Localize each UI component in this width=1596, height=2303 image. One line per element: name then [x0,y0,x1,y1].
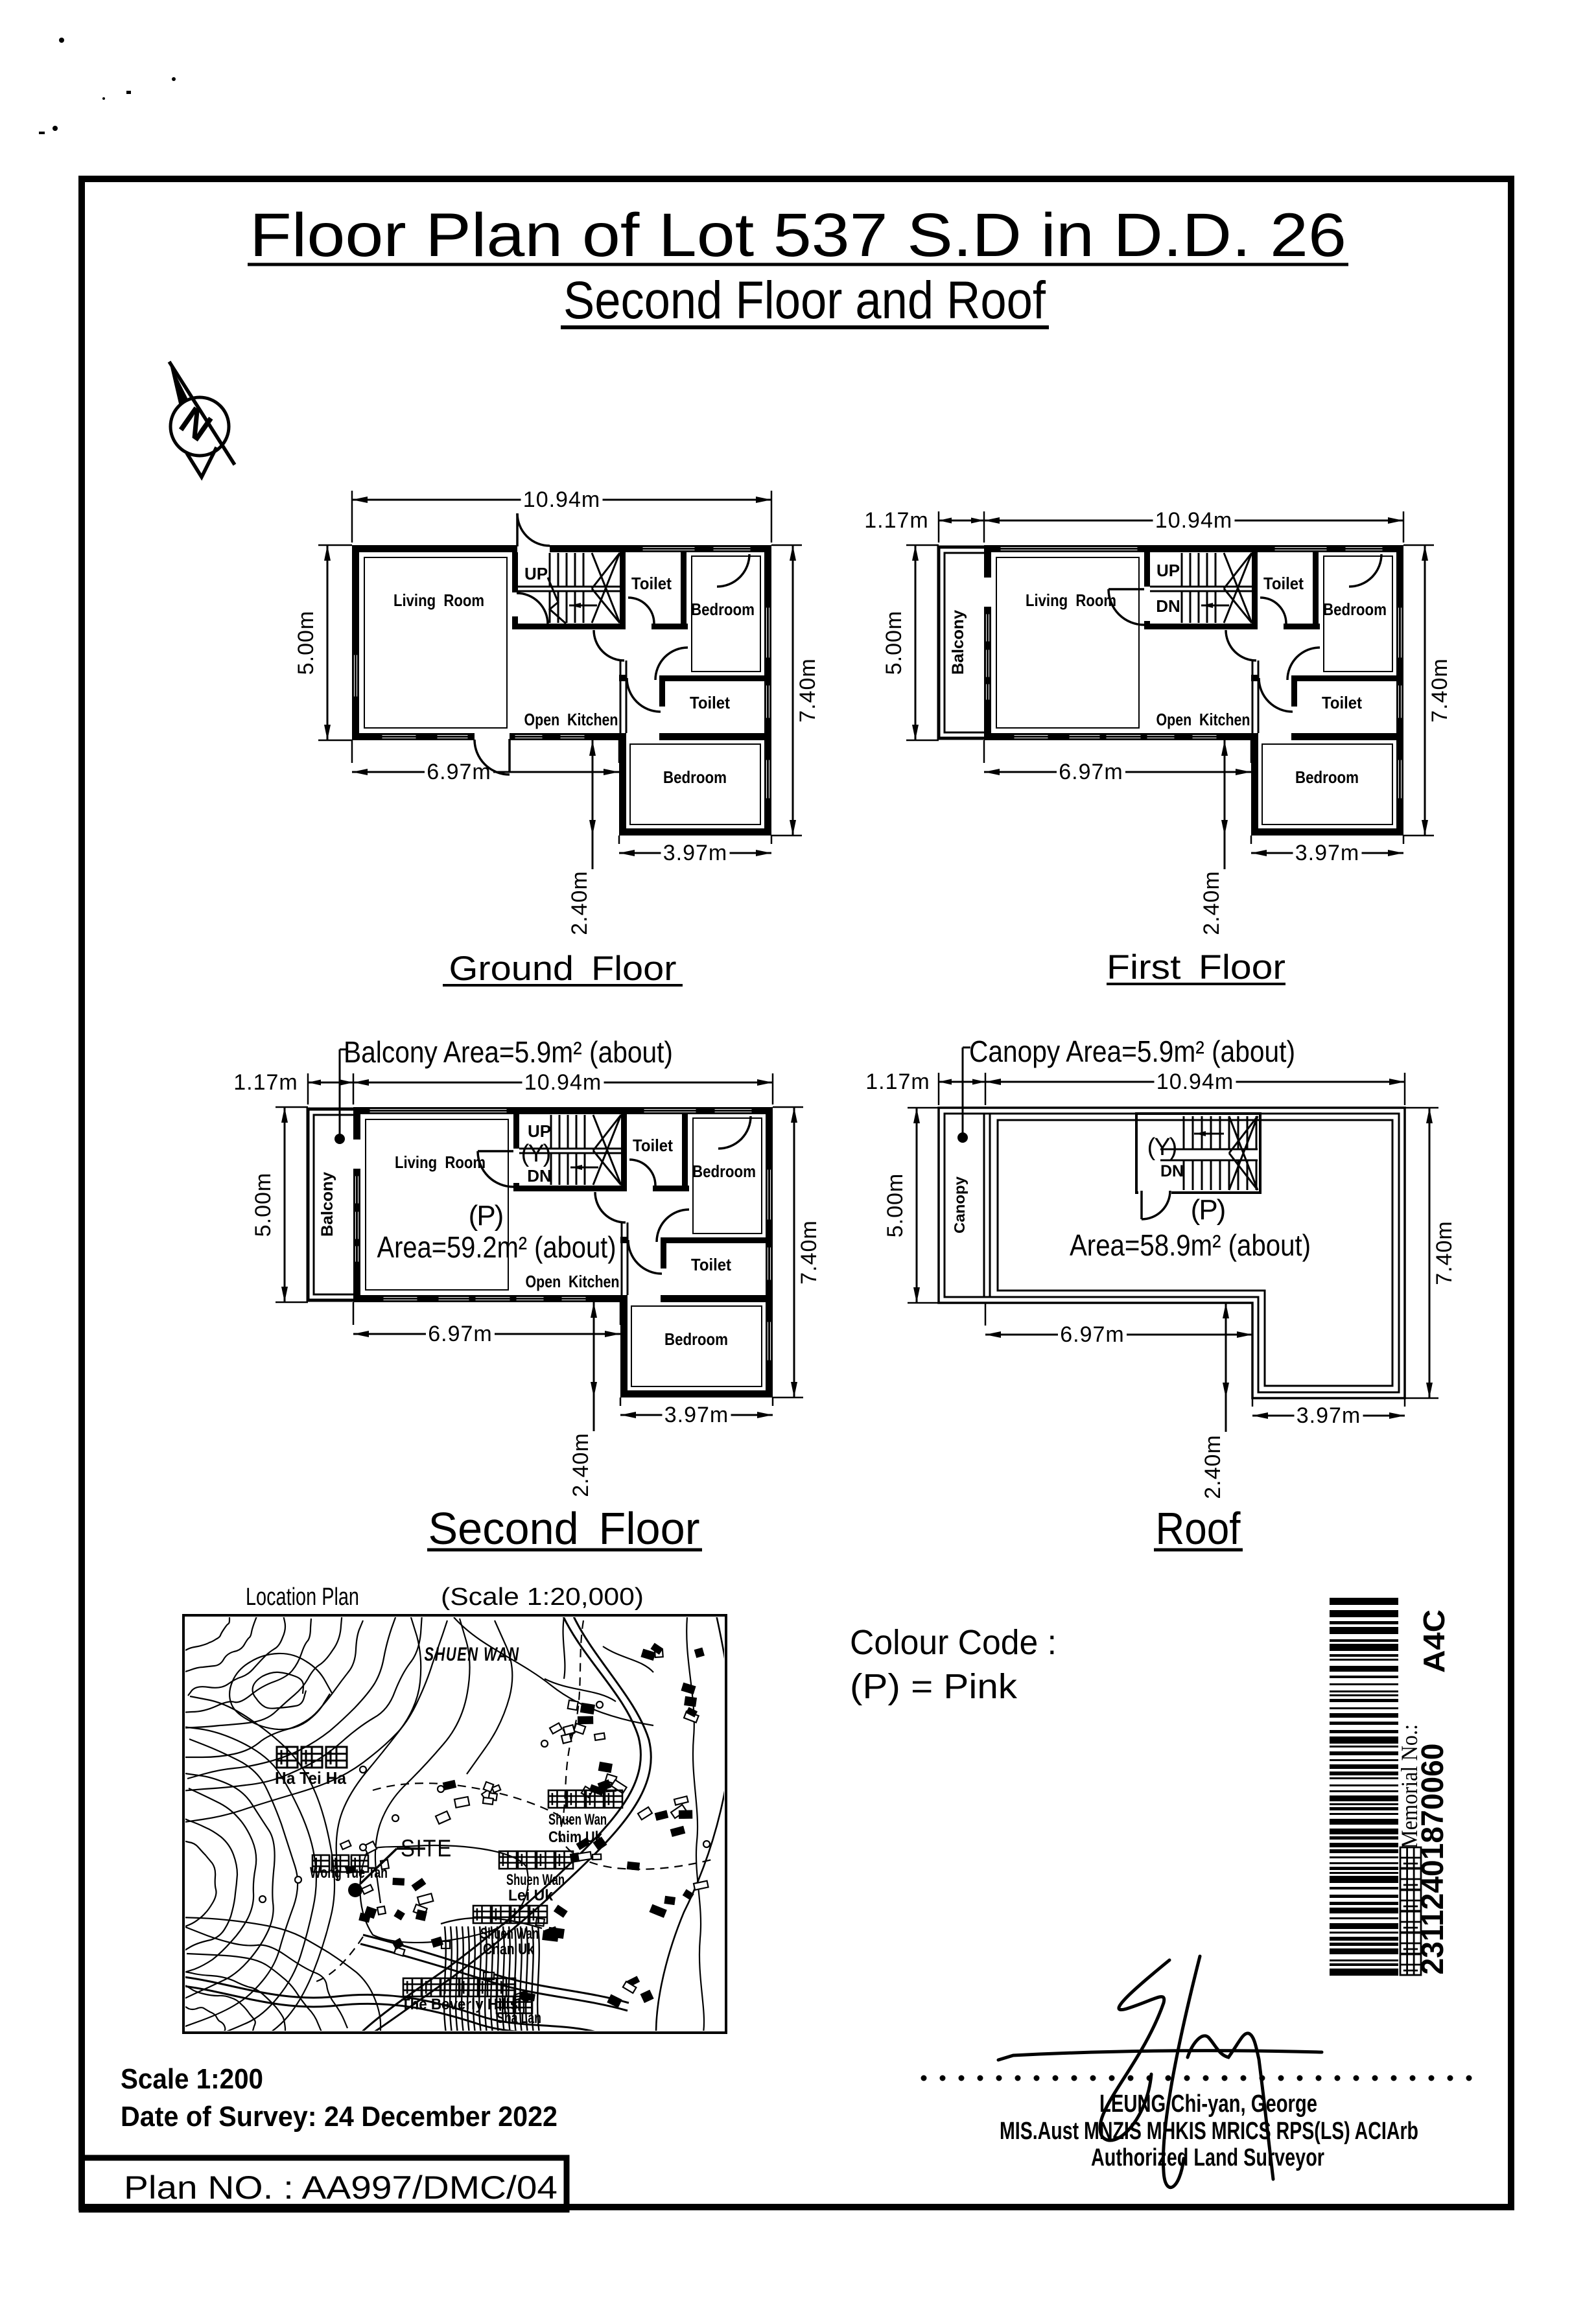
svg-text:Chim Uk: Chim Uk [548,1829,603,1846]
svg-text:10.94m: 10.94m [523,487,600,512]
svg-text:Wong Yue Tan: Wong Yue Tan [310,1864,388,1882]
svg-text:Chan Uk: Chan Uk [483,1941,535,1958]
svg-text:UP: UP [524,564,548,583]
svg-text:Area=58.9m² (about): Area=58.9m² (about) [1070,1228,1311,1262]
svg-text:First Floor: First Floor [1107,948,1285,987]
svg-text:Second Floor and Roof: Second Floor and Roof [563,271,1046,330]
svg-text:5.00m: 5.00m [882,611,906,675]
svg-text:23112401870060: 23112401870060 [1416,1744,1450,1975]
svg-text:Bedroom: Bedroom [663,767,727,787]
svg-text:Canopy Area=5.9m² (about): Canopy Area=5.9m² (about) [969,1035,1295,1068]
svg-text:7.40m: 7.40m [795,658,820,723]
svg-text:Shuen Wan: Shuen Wan [480,1925,539,1943]
svg-text:Bedroom: Bedroom [692,1162,756,1181]
svg-text:Shuen Wan: Shuen Wan [506,1871,565,1889]
svg-text:Balcony: Balcony [949,610,967,675]
svg-text:5.00m: 5.00m [251,1173,276,1237]
svg-text:LEUNG Chi-yan, George: LEUNG Chi-yan, George [1099,2090,1317,2118]
svg-text:SHUEN WAN: SHUEN WAN [425,1644,520,1665]
svg-text:(Y): (Y) [521,1140,550,1167]
svg-text:Living Room: Living Room [393,590,484,610]
svg-text:Second Floor: Second Floor [428,1503,700,1554]
svg-text:Toilet: Toilet [631,574,672,593]
svg-text:3.97m: 3.97m [664,1403,729,1427]
svg-text:Shuen Wan: Shuen Wan [548,1811,607,1829]
svg-text:7.40m: 7.40m [1432,1221,1457,1285]
svg-text:Living Room: Living Room [395,1152,486,1172]
svg-text:Open Kitchen: Open Kitchen [526,1272,620,1291]
svg-text:Bedroom: Bedroom [1323,600,1387,619]
svg-text:3.97m: 3.97m [1297,1403,1361,1428]
svg-text:Bedroom: Bedroom [1295,767,1359,787]
svg-text:5.00m: 5.00m [294,611,318,675]
svg-text:Canopy: Canopy [951,1176,968,1233]
svg-text:Toilet: Toilet [633,1136,673,1155]
svg-text:10.94m: 10.94m [1155,508,1232,533]
svg-text:Roof: Roof [1156,1503,1241,1554]
svg-text:Ha Tei Ha: Ha Tei Ha [275,1768,347,1788]
svg-text:Toilet: Toilet [690,693,730,712]
svg-text:UP: UP [528,1121,551,1141]
svg-text:1.17m: 1.17m [865,1070,930,1094]
svg-text:Floor Plan of Lot 537 S.D in D: Floor Plan of Lot 537 S.D in D.D. 26 [250,201,1346,270]
svg-text:3.97m: 3.97m [1295,841,1360,865]
svg-text:6.97m: 6.97m [1059,760,1123,784]
svg-text:Toilet: Toilet [691,1255,731,1274]
svg-text:(P): (P) [469,1200,503,1232]
svg-text:Date of Survey: 24 December 20: Date of Survey: 24 December 2022 [121,2101,557,2133]
svg-text:Area=59.2m² (about): Area=59.2m² (about) [377,1230,616,1264]
svg-text:Toilet: Toilet [1322,693,1362,712]
svg-text:(Scale 1:20,000): (Scale 1:20,000) [441,1584,644,1611]
svg-text:Open Kitchen: Open Kitchen [1156,710,1250,729]
svg-text:Authorized Land Surveyor: Authorized Land Surveyor [1091,2144,1324,2171]
svg-text:UP: UP [1156,561,1180,580]
svg-text:Scale 1:200: Scale 1:200 [121,2063,263,2095]
svg-text:A4C: A4C [1417,1609,1451,1673]
svg-text:(Y): (Y) [1147,1134,1177,1161]
svg-text:2.40m: 2.40m [567,871,592,935]
svg-text:DN: DN [1160,1162,1184,1180]
svg-text:Toilet: Toilet [1263,574,1304,593]
svg-text:10.94m: 10.94m [524,1070,602,1095]
svg-text:2.40m: 2.40m [569,1432,593,1497]
svg-text:6.97m: 6.97m [1060,1322,1125,1347]
svg-text:DN: DN [1156,596,1180,616]
svg-text:5.00m: 5.00m [883,1173,908,1238]
svg-text:Balcony: Balcony [318,1172,336,1237]
svg-text:Living Room: Living Room [1026,590,1116,610]
svg-text:Bedroom: Bedroom [691,600,755,619]
svg-text:DN: DN [527,1166,552,1186]
svg-text:2.40m: 2.40m [1201,1434,1225,1499]
svg-text:6.97m: 6.97m [427,760,491,784]
svg-text:6.97m: 6.97m [428,1322,493,1346]
svg-text:Ground Floor: Ground Floor [449,950,677,988]
svg-text:3.97m: 3.97m [663,841,728,865]
svg-text:7.40m: 7.40m [1427,658,1452,723]
svg-text:1.17m: 1.17m [864,508,929,533]
svg-text:Location Plan: Location Plan [246,1584,359,1611]
svg-text:10.94m: 10.94m [1156,1070,1234,1094]
svg-text:7.40m: 7.40m [797,1220,821,1285]
svg-text:(P): (P) [1191,1194,1225,1226]
svg-text:Bedroom: Bedroom [664,1329,728,1349]
svg-text:Plan NO. : AA997/DMC/04: Plan NO. : AA997/DMC/04 [124,2169,557,2206]
svg-text:Colour Code :: Colour Code : [850,1623,1057,1662]
svg-text:Balcony Area=5.9m² (about): Balcony Area=5.9m² (about) [344,1035,673,1069]
svg-text:1.17m: 1.17m [233,1070,298,1095]
svg-text:2.40m: 2.40m [1199,871,1224,935]
svg-text:Lei Uk: Lei Uk [508,1887,554,1904]
svg-text:Open Kitchen: Open Kitchen [524,710,618,729]
svg-text:Sha Lan: Sha Lan [497,2009,541,2027]
svg-text:MIS.Aust MNZIS MHKIS MRICS RPS: MIS.Aust MNZIS MHKIS MRICS RPS(LS) ACIAr… [1000,2118,1418,2145]
svg-text:(P) = Pink: (P) = Pink [850,1667,1018,1706]
